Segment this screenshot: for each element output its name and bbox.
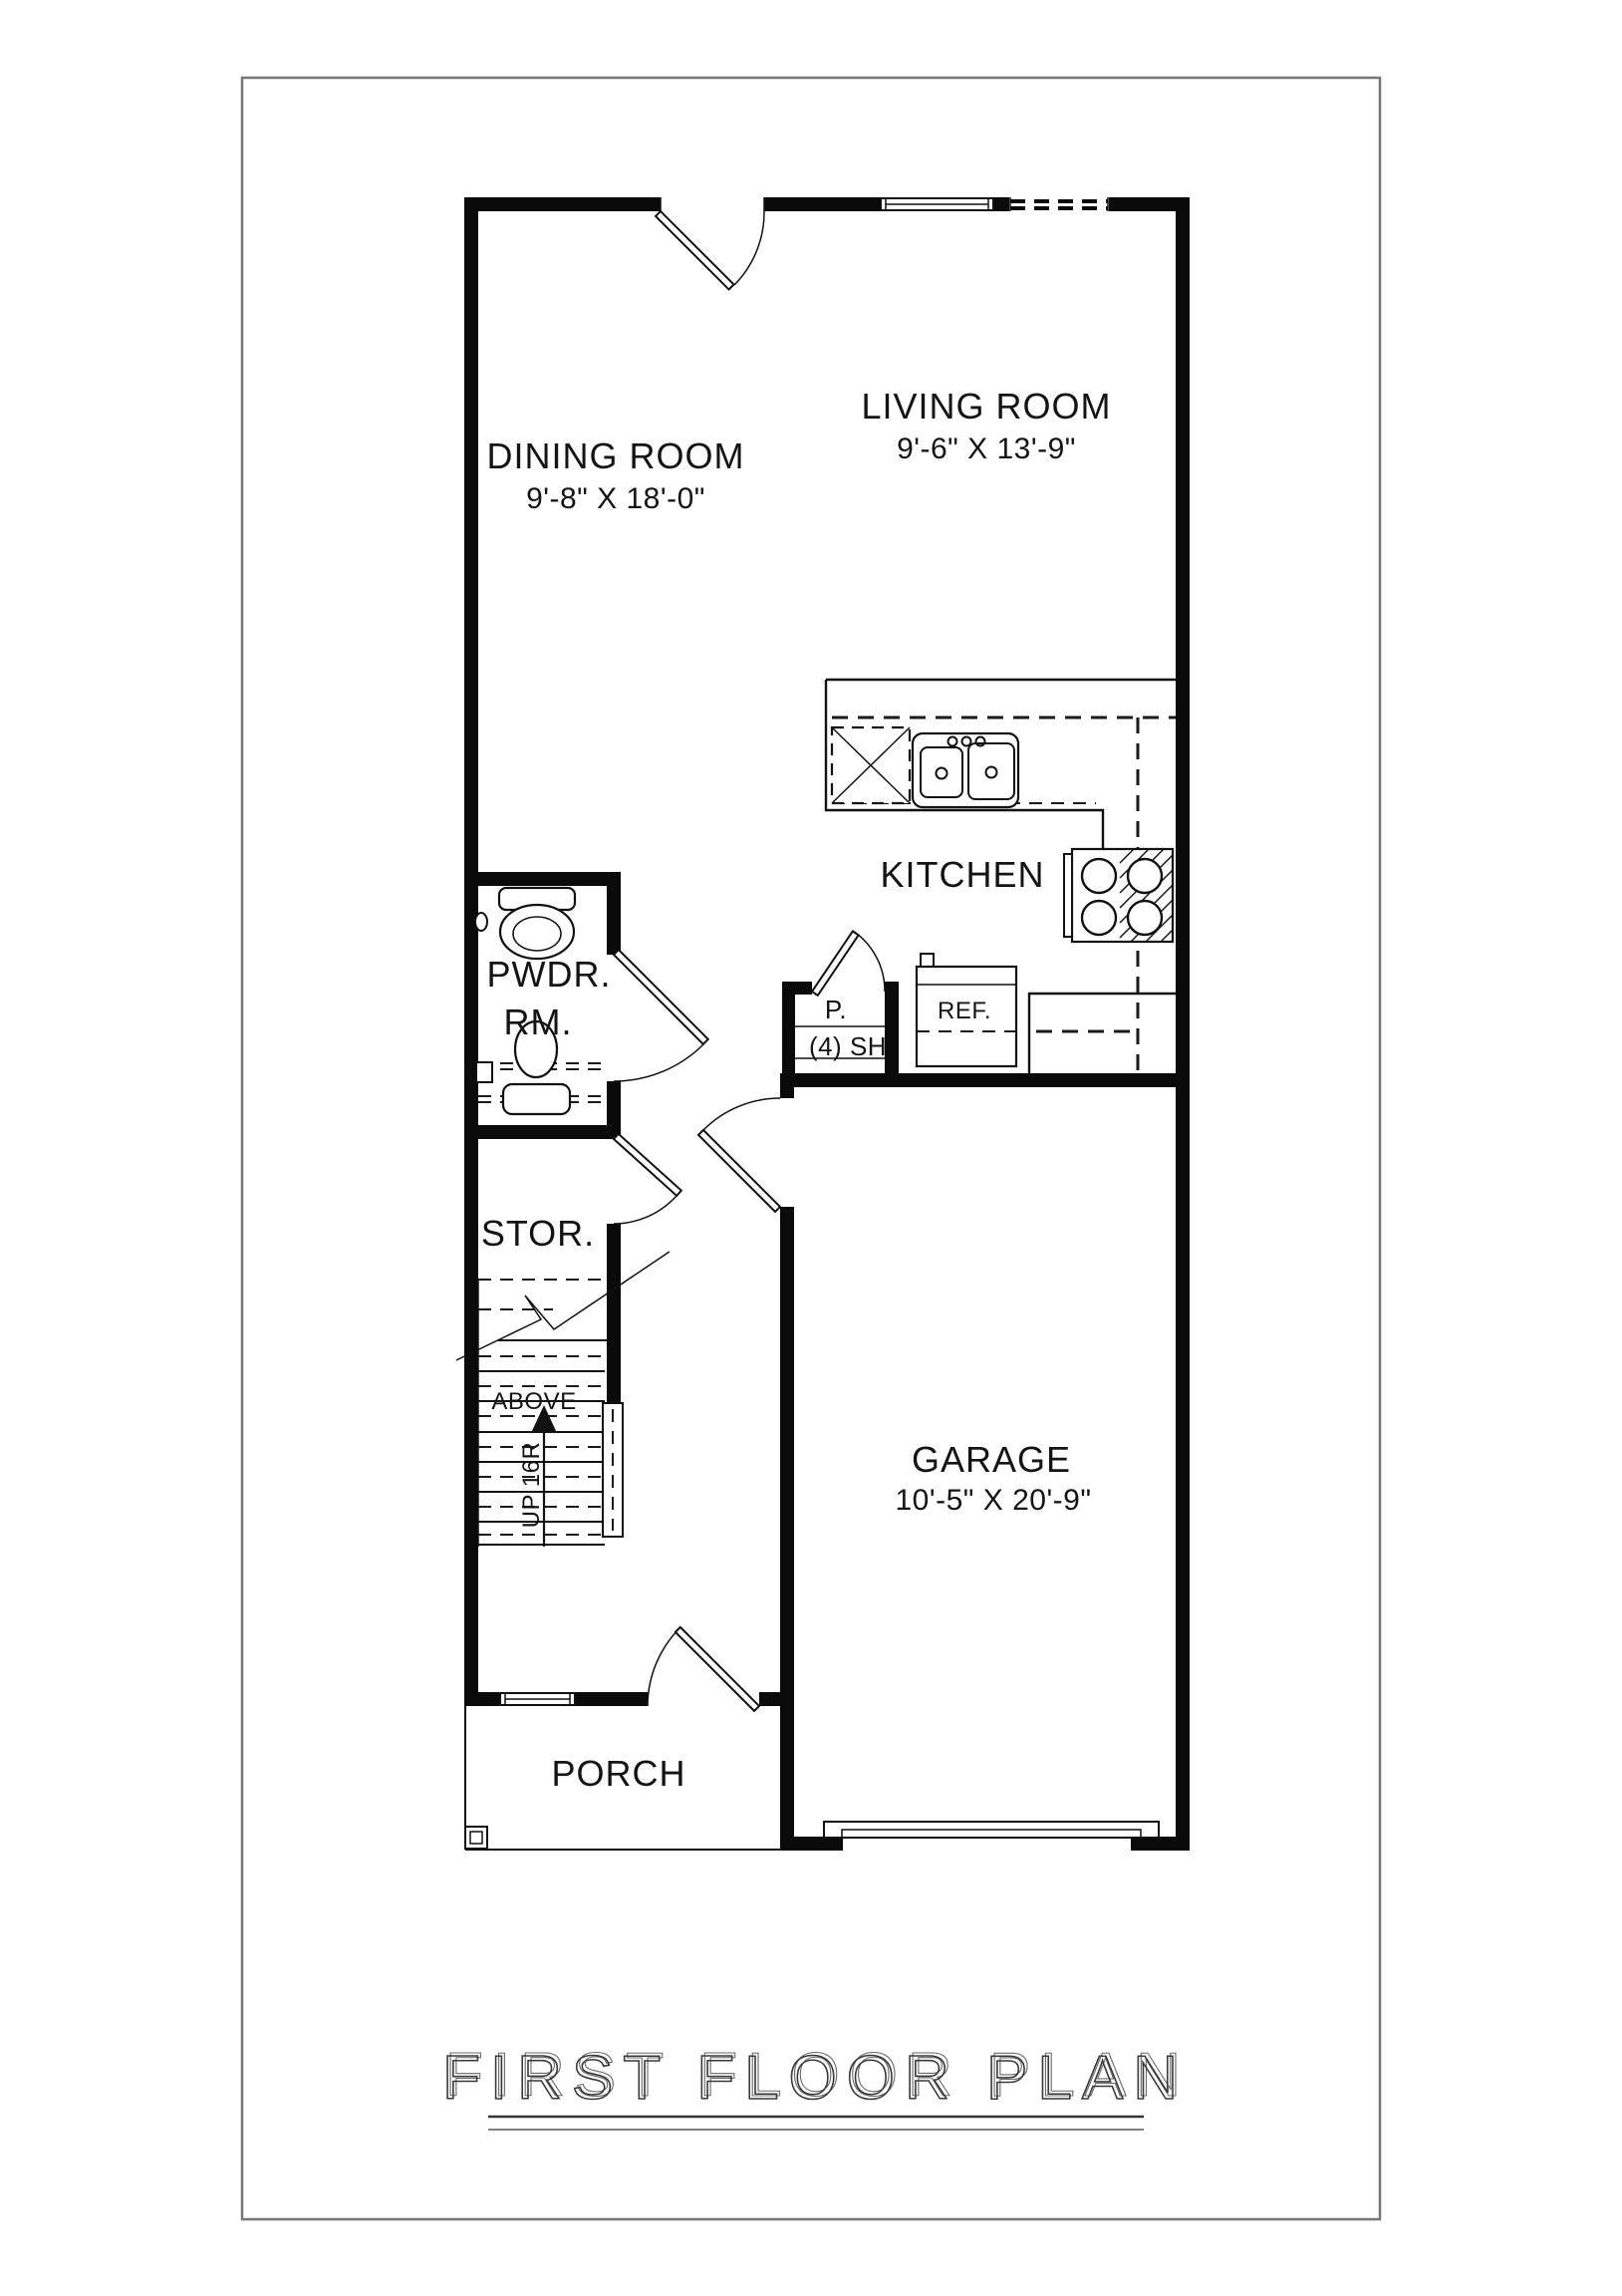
stair-break-line [456, 1252, 670, 1360]
wall-fixture [475, 913, 487, 931]
garage-label: GARAGE [912, 1439, 1071, 1480]
storage-label: STOR. [481, 1213, 595, 1254]
living-room-dims: 9'-6" X 13'-9" [897, 432, 1076, 465]
stairs-above-label: ABOVE [491, 1388, 576, 1415]
living-room-window [881, 198, 993, 210]
dishwasher [832, 727, 910, 803]
plan-title: FIRST FLOOR PLAN [442, 2044, 1188, 2113]
garage-door [824, 1822, 1159, 1838]
stairs: ABOVE UP 16R [456, 1252, 670, 1547]
pantry-door [812, 931, 885, 996]
paper-holder [476, 1062, 492, 1082]
kitchen-sink [913, 733, 1018, 807]
garage-dims: 10'-5" X 20'-9" [895, 1484, 1091, 1517]
porch-post [465, 1827, 487, 1849]
pantry: P. (4) SH [795, 995, 887, 1061]
powder-room-door [614, 950, 708, 1081]
refrigerator: REF. [917, 954, 1016, 1066]
living-room-label: LIVING ROOM [861, 386, 1111, 427]
range [1064, 849, 1173, 942]
stair-newel [603, 1403, 623, 1537]
title-block: FIRST FLOOR PLAN FIRST FLOOR PLAN [442, 2041, 1191, 2130]
front-entry-door [648, 1627, 759, 1711]
garage-entry-door [698, 1098, 780, 1212]
page-border [242, 78, 1380, 2219]
powder-room-label-line1: PWDR. [487, 954, 612, 995]
transom-opening [1010, 197, 1108, 211]
rear-entry-door [656, 197, 764, 289]
stairs-direction-label: UP 16R [518, 1442, 545, 1529]
floor-plan-drawing: REF. P. (4) SH [0, 0, 1622, 2296]
room-labels: DINING ROOM 9'-8" X 18'-0" LIVING ROOM 9… [481, 386, 1112, 1794]
refrigerator-label: REF. [938, 998, 991, 1024]
dining-room-label: DINING ROOM [487, 435, 745, 476]
porch-window [500, 1693, 575, 1705]
pantry-label: P. [825, 995, 847, 1024]
powder-room-label-line2: RM. [504, 1002, 573, 1042]
porch-label: PORCH [551, 1753, 685, 1794]
floor-plan-page: REF. P. (4) SH [0, 0, 1622, 2296]
storage-door [614, 1134, 681, 1224]
pantry-shelves-label: (4) SH [809, 1031, 887, 1061]
dining-room-dims: 9'-8" X 18'-0" [526, 482, 705, 515]
toilet [499, 888, 575, 959]
kitchen-label: KITCHEN [880, 854, 1044, 895]
